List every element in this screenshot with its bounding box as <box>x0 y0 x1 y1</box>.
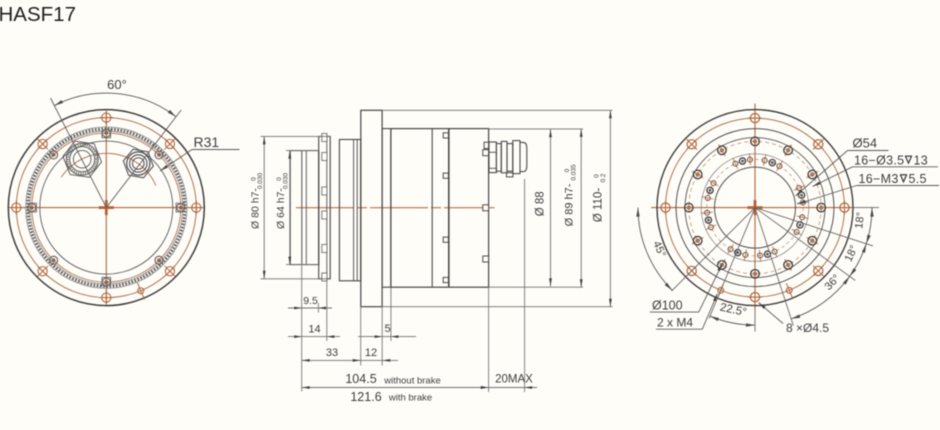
svg-text:60°: 60° <box>107 77 127 92</box>
svg-text:Ø 80 h7-: Ø 80 h7- <box>250 188 262 229</box>
svg-text:14: 14 <box>308 324 320 336</box>
svg-text:Ø 88: Ø 88 <box>535 191 547 216</box>
svg-text:Ø54: Ø54 <box>853 136 878 151</box>
svg-text:with brake: with brake <box>388 393 432 404</box>
svg-text:5: 5 <box>384 323 390 335</box>
svg-text:18°: 18° <box>853 212 867 230</box>
svg-text:Ø 110-: Ø 110- <box>593 188 605 222</box>
svg-text:5.5: 5.5 <box>909 172 927 186</box>
svg-text:2 x M4: 2 x M4 <box>657 316 693 330</box>
svg-text:16−Ø3.5: 16−Ø3.5 <box>854 153 904 167</box>
svg-text:20MAX: 20MAX <box>495 374 533 386</box>
svg-text:13: 13 <box>914 153 929 167</box>
svg-text:R31: R31 <box>194 134 220 150</box>
svg-text:33: 33 <box>326 347 338 359</box>
svg-text:0.030: 0.030 <box>257 172 264 189</box>
svg-text:Ø 89 h7-: Ø 89 h7- <box>564 183 576 226</box>
svg-text:Ø100: Ø100 <box>652 299 683 313</box>
svg-text:104.5: 104.5 <box>345 372 376 386</box>
svg-text:0.2: 0.2 <box>600 173 607 182</box>
svg-text:HASF17: HASF17 <box>0 3 76 26</box>
svg-text:9.5: 9.5 <box>303 295 318 307</box>
svg-text:121.6: 121.6 <box>350 390 381 404</box>
svg-text:Ø 64 h7-: Ø 64 h7- <box>275 188 287 229</box>
svg-text:45°: 45° <box>650 239 668 259</box>
svg-text:16−M3: 16−M3 <box>859 172 899 186</box>
svg-text:12: 12 <box>365 347 377 359</box>
svg-text:0.030: 0.030 <box>282 172 289 189</box>
svg-text:0.035: 0.035 <box>570 164 577 181</box>
svg-text:8 ×Ø4.5: 8 ×Ø4.5 <box>786 321 829 335</box>
svg-text:without brake: without brake <box>383 375 441 386</box>
